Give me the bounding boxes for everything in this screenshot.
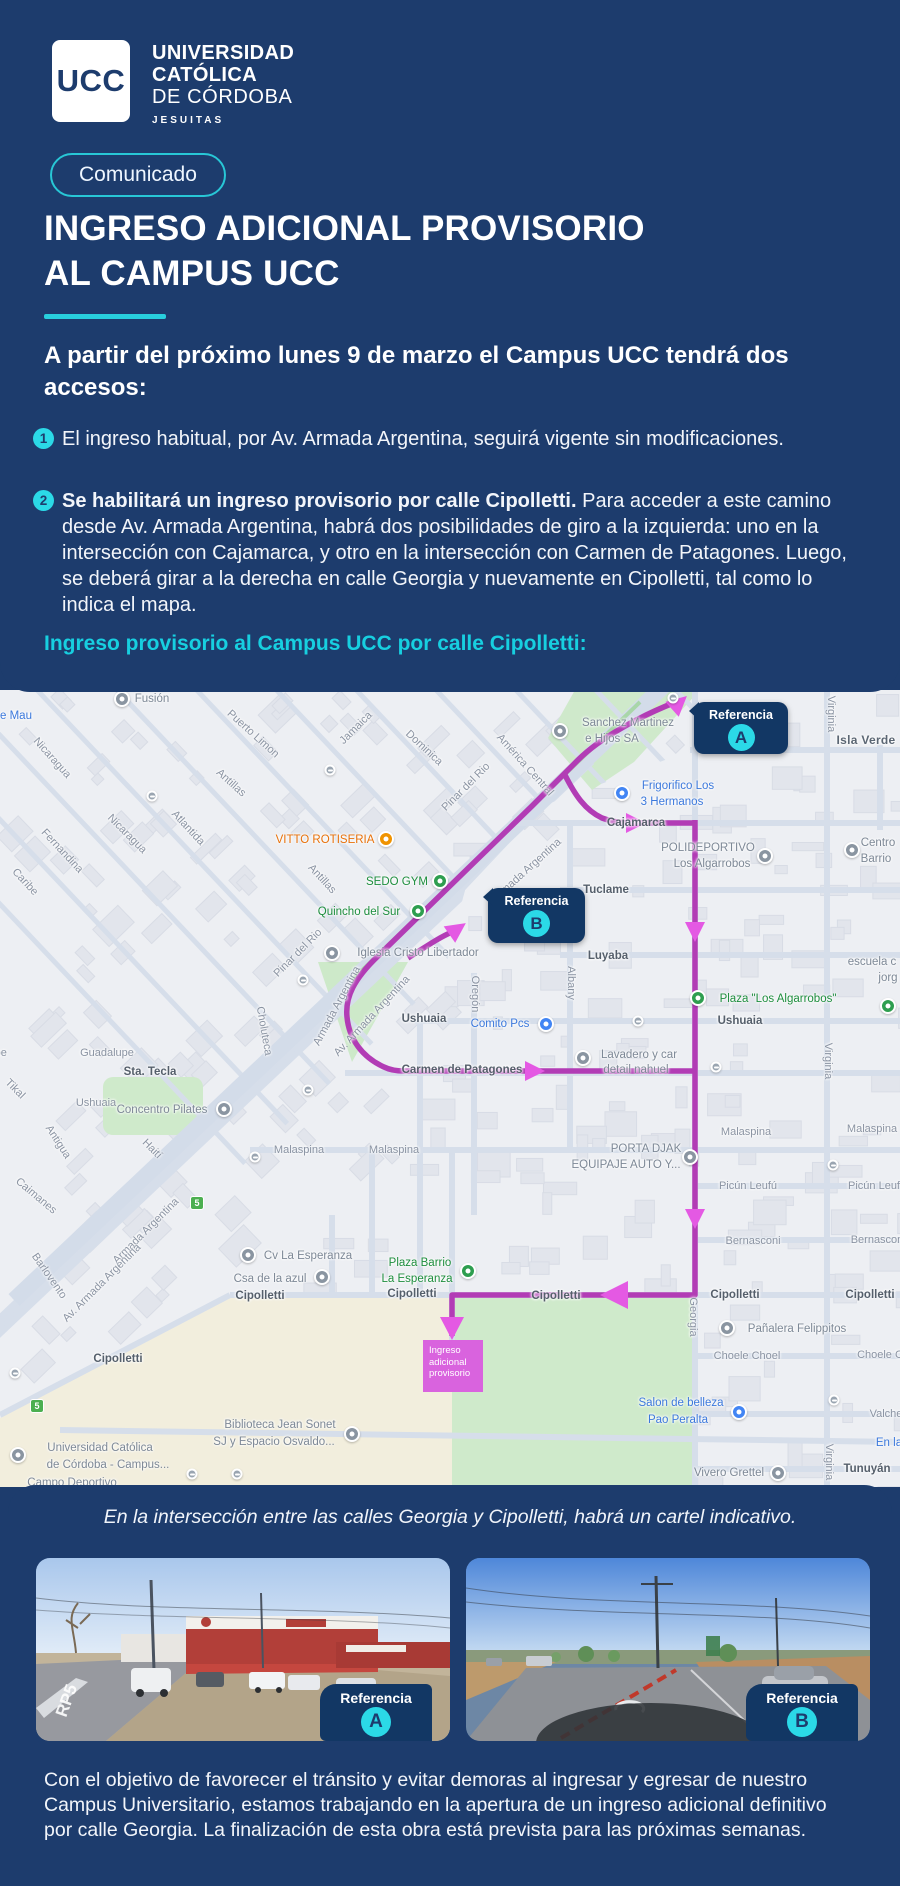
callout-a-letter: A [728,724,755,751]
photo-a-reference-tag: Referencia A [320,1684,432,1741]
map-transit-icon [828,1160,839,1171]
map-transit-icon [147,791,158,802]
map-route-shield: 5 [30,1399,44,1413]
map-transit-icon [232,1469,243,1480]
university-name-jesuitas: JESUITAS [152,115,294,126]
university-name: UNIVERSIDAD CATÓLICA DE CÓRDOBA JESUITAS [152,40,294,126]
item-2-number: 2 [33,490,54,511]
map-transit-icon [668,693,679,704]
map-transit-icon [187,1469,198,1480]
map-poi-gray-icon [216,1101,232,1117]
map-ingreso-label: Ingreso adicional provisorio [423,1340,483,1392]
map-poi-orange-icon [378,831,394,847]
map-poi-gray-icon [770,1465,786,1481]
comunicado-badge: Comunicado [50,153,226,197]
map-poi-blue-icon [731,1404,747,1420]
map-route-shield: 5 [190,1196,204,1210]
university-logo: UCC UNIVERSIDAD CATÓLICA DE CÓRDOBA JESU… [52,40,294,126]
callout-b-label: Referencia [488,894,585,908]
map-poi-blue-icon [614,785,630,801]
tag-b-letter: B [787,1707,817,1737]
map-transit-icon [298,975,309,986]
map-callout-referencia-a: Referencia A [694,702,788,754]
item-2-bold: Se habilitará un ingreso provisorio por … [62,490,577,512]
map-transit-icon [10,1368,21,1379]
university-name-line3: DE CÓRDOBA [152,86,294,108]
map-poi-green-icon [432,873,448,889]
ingreso-line3: provisorio [429,1368,483,1380]
photos-caption: En la intersección entre las calles Geor… [8,1506,892,1529]
map-poi-gray-icon [114,691,130,707]
callout-b-letter: B [523,910,550,937]
map-poi-green-icon [460,1263,476,1279]
ingreso-line1: Ingreso [429,1345,483,1357]
map-poi-gray-icon [844,842,860,858]
university-name-line2: CATÓLICA [152,64,294,86]
header-panel: UCC UNIVERSIDAD CATÓLICA DE CÓRDOBA JESU… [0,0,900,692]
map-heading: Ingreso provisorio al Campus UCC por cal… [44,632,587,656]
page-title-line2: AL CAMPUS UCC [44,251,645,296]
ingreso-line2: adicional [429,1357,483,1369]
map-poi-blue-icon [538,1016,554,1032]
map-poi-gray-icon [314,1269,330,1285]
map-poi-green-icon [690,990,706,1006]
tag-a-label: Referencia [320,1690,432,1706]
ucc-logo-acronym: UCC [57,63,126,99]
map-poi-green-icon [410,903,426,919]
map-poi-gray-icon [757,848,773,864]
map-campus-green [452,1298,695,1487]
route-map: e MauFusiónPuerto LimonJamaicaDominicaNi… [0,690,900,1487]
footer-text: Con el objetivo de favorecer el tránsito… [44,1768,844,1843]
list-item-1: 1 El ingreso habitual, por Av. Armada Ar… [33,426,863,452]
map-transit-icon [250,1152,261,1163]
university-name-line1: UNIVERSIDAD [152,42,294,64]
ucc-logo-mark: UCC [52,40,130,122]
map-poi-green-icon [880,998,896,1014]
map-poi-gray-icon [575,1050,591,1066]
map-transit-icon [711,1062,722,1073]
page-title-line1: INGRESO ADICIONAL PROVISORIO [44,206,645,251]
photo-b-reference-tag: Referencia B [746,1684,858,1741]
map-transit-icon [633,1016,644,1027]
map-transit-icon [303,1085,314,1096]
item-1-number: 1 [33,428,54,449]
map-poi-gray-icon [719,1320,735,1336]
map-callout-referencia-b: Referencia B [488,888,585,943]
page-title: INGRESO ADICIONAL PROVISORIO AL CAMPUS U… [44,206,645,296]
bottom-card: En la intersección entre las calles Geor… [8,1485,892,1886]
callout-a-label: Referencia [694,708,788,722]
map-poi-gray-icon [552,723,568,739]
item-1-text: El ingreso habitual, por Av. Armada Arge… [62,428,784,450]
map-poi-gray-icon [344,1426,360,1442]
tag-a-letter: A [361,1707,391,1737]
map-poi-gray-icon [10,1447,26,1463]
map-poi-gray-icon [324,945,340,961]
intro-text: A partir del próximo lunes 9 de marzo el… [44,340,864,404]
map-poi-gray-icon [240,1247,256,1263]
map-transit-icon [829,1395,840,1406]
title-underline [44,314,166,319]
tag-b-label: Referencia [746,1690,858,1706]
map-transit-icon [325,765,336,776]
list-item-2: 2 Se habilitará un ingreso provisorio po… [33,488,863,618]
map-poi-gray-icon [682,1149,698,1165]
